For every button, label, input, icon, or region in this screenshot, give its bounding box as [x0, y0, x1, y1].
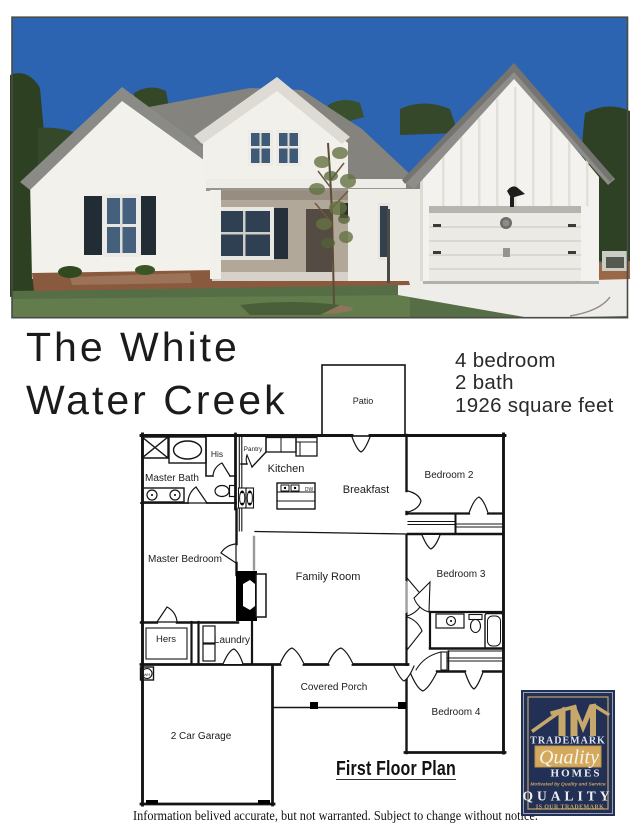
svg-text:Kitchen: Kitchen — [268, 463, 305, 475]
svg-text:HOMES: HOMES — [551, 768, 602, 780]
svg-text:Pantry: Pantry — [244, 446, 264, 453]
svg-text:Covered Porch: Covered Porch — [301, 682, 368, 693]
svg-text:Breakfast: Breakfast — [343, 484, 389, 496]
svg-text:QUALITY: QUALITY — [522, 789, 613, 804]
svg-text:Bedroom 4: Bedroom 4 — [432, 707, 481, 718]
svg-text:Family Room: Family Room — [296, 571, 361, 583]
svg-text:Master Bedroom: Master Bedroom — [148, 554, 222, 565]
svg-text:His: His — [211, 449, 223, 459]
svg-text:WH: WH — [144, 672, 151, 677]
svg-text:Patio: Patio — [353, 396, 374, 406]
svg-text:Quality: Quality — [539, 747, 599, 769]
svg-text:IS OUR TRADEMARK: IS OUR TRADEMARK — [536, 805, 604, 811]
svg-text:Bedroom 2: Bedroom 2 — [425, 470, 474, 481]
svg-text:DW: DW — [305, 487, 314, 493]
svg-text:Motivated by Quality and Servi: Motivated by Quality and Service — [530, 782, 606, 788]
svg-text:Laundry: Laundry — [214, 635, 250, 646]
svg-text:Master Bath: Master Bath — [145, 473, 199, 484]
svg-text:2 Car Garage: 2 Car Garage — [171, 731, 232, 742]
svg-text:Hers: Hers — [156, 634, 176, 645]
svg-text:Bedroom 3: Bedroom 3 — [437, 569, 486, 580]
svg-text:TRADEMARK: TRADEMARK — [530, 736, 606, 747]
